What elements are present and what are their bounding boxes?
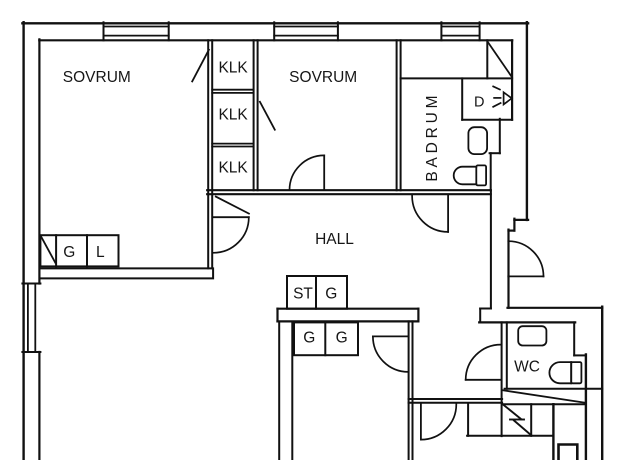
svg-text:G: G [303,330,315,347]
svg-text:KLK: KLK [218,107,248,124]
svg-text:G: G [63,244,75,261]
svg-text:SOVRUM: SOVRUM [63,69,131,86]
svg-text:G: G [325,286,337,303]
svg-text:D: D [474,95,484,111]
svg-text:WC: WC [514,358,540,375]
svg-text:ST: ST [293,286,313,303]
svg-text:G: G [336,330,348,347]
svg-text:KLK: KLK [218,60,248,77]
svg-text:KLK: KLK [218,160,248,177]
svg-text:L: L [96,244,105,261]
svg-text:SOVRUM: SOVRUM [289,69,357,86]
svg-text:BADRUM: BADRUM [424,92,441,182]
svg-text:HALL: HALL [315,231,354,248]
